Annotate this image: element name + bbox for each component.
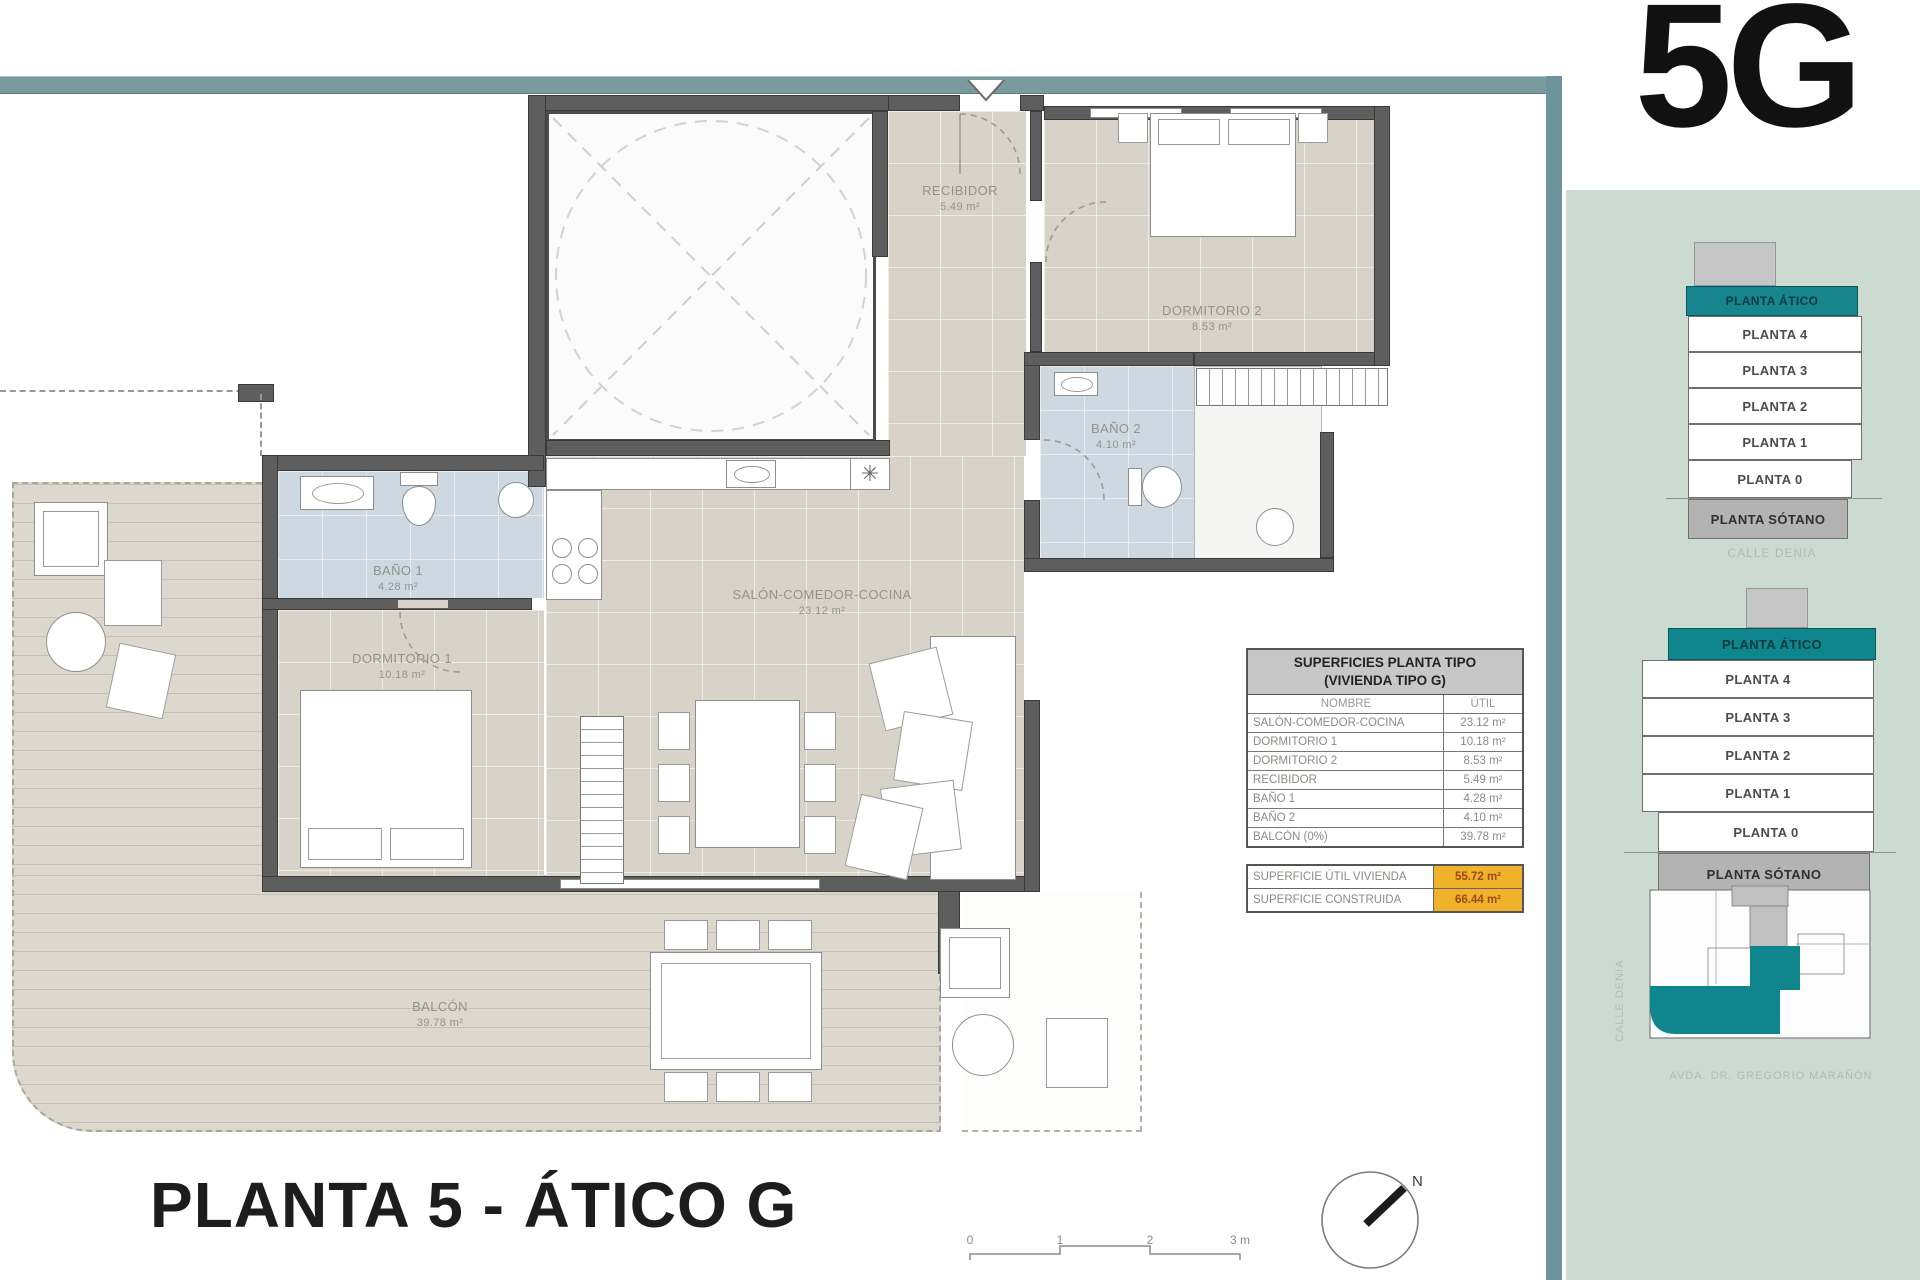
- room-label-bano1: BAÑO 14.28 m²: [268, 562, 528, 596]
- wall: [528, 95, 546, 487]
- boundary-dash: [0, 390, 262, 392]
- pillow: [390, 828, 464, 860]
- room-label-dormitorio2: DORMITORIO 28.53 m²: [1082, 302, 1342, 336]
- wall: [1030, 262, 1042, 352]
- chair: [804, 764, 836, 802]
- chair: [804, 712, 836, 750]
- table-row: SUPERFICIE ÚTIL VIVIENDA55.72 m²: [1248, 866, 1522, 888]
- wall: [238, 384, 274, 402]
- toilet-tank: [1128, 468, 1142, 506]
- pillow: [1228, 119, 1290, 145]
- wall: [1194, 352, 1390, 366]
- surfaces-totals: SUPERFICIE ÚTIL VIVIENDA55.72 m² SUPERFI…: [1246, 864, 1524, 913]
- bathroom-sink: [1054, 372, 1098, 396]
- street-label-left: CALLE DENIA: [1614, 922, 1626, 1042]
- room-label-recibidor: RECIBIDOR5.49 m²: [830, 182, 1090, 216]
- north-arrow-icon: N: [1308, 1152, 1438, 1276]
- outdoor-chair: [1046, 1018, 1108, 1088]
- stove-burner-icon: [552, 538, 572, 558]
- svg-text:1: 1: [1057, 1233, 1064, 1247]
- outdoor-dining-table: [650, 952, 822, 1070]
- street-label-bottom: AVDA. DR. GREGORIO MARAÑÓN: [1646, 1070, 1896, 1082]
- wall: [888, 95, 960, 111]
- top-border-bar: [0, 76, 1562, 94]
- laundry-sink-icon: [1256, 508, 1294, 546]
- wall: [546, 440, 890, 456]
- outdoor-table-round: [952, 1014, 1014, 1076]
- table-row: SUPERFICIE CONSTRUIDA66.44 m²: [1248, 888, 1522, 911]
- chair: [768, 920, 812, 950]
- stack-level-atico: PLANTA ÁTICO: [1686, 286, 1858, 316]
- stack-level: PLANTA 1: [1688, 424, 1862, 460]
- svg-text:0: 0: [967, 1233, 974, 1247]
- stack-level-sotano: PLANTA SÓTANO: [1688, 499, 1848, 539]
- chair: [768, 1072, 812, 1102]
- roof-box: [1746, 588, 1808, 628]
- wall: [1024, 352, 1194, 366]
- sofa-cushion: [893, 711, 973, 791]
- planter: [34, 502, 108, 576]
- wall: [1020, 95, 1044, 111]
- table-row: BAÑO 14.28 m²: [1248, 789, 1522, 808]
- outdoor-chair: [104, 560, 162, 626]
- right-border-strip: [1546, 76, 1562, 1280]
- site-plan: [1646, 884, 1896, 1066]
- room-label-salon: SALÓN-COMEDOR-COCINA23.12 m²: [692, 586, 952, 620]
- room-label-balcon: BALCÓN39.78 m²: [310, 998, 570, 1032]
- stack-level-atico: PLANTA ÁTICO: [1668, 628, 1876, 660]
- table-row: DORMITORIO 28.53 m²: [1248, 751, 1522, 770]
- table-row: BALCÓN (0%)39.78 m²: [1248, 827, 1522, 846]
- chair: [716, 920, 760, 950]
- stack-level: PLANTA 3: [1688, 352, 1862, 388]
- toilet: [1142, 466, 1182, 508]
- wall: [1374, 106, 1390, 366]
- room-label-bano2: BAÑO 24.10 m²: [986, 420, 1246, 454]
- chair: [658, 764, 690, 802]
- wall: [1024, 700, 1040, 892]
- stack-diagram-small: PLANTA ÁTICO PLANTA 4 PLANTA 3 PLANTA 2 …: [1686, 242, 1862, 562]
- planter: [940, 928, 1010, 998]
- stack-level: PLANTA 0: [1688, 460, 1852, 498]
- svg-text:2: 2: [1147, 1233, 1154, 1247]
- chair: [804, 816, 836, 854]
- stack-level: PLANTA 4: [1688, 316, 1862, 352]
- room-label-dormitorio1: DORMITORIO 110.18 m²: [272, 650, 532, 684]
- floor-plan-sheet: 5G: [0, 0, 1920, 1280]
- door-arc: [958, 112, 1024, 178]
- wall: [262, 455, 544, 471]
- stack-diagram-large: PLANTA ÁTICO PLANTA 4 PLANTA 3 PLANTA 2 …: [1642, 588, 1878, 928]
- wall: [528, 95, 890, 111]
- scale-bar: 0 1 2 3 m: [962, 1198, 1252, 1262]
- kitchen-sink: [726, 460, 776, 488]
- surfaces-header-row: NOMBRE ÚTIL: [1248, 695, 1522, 713]
- entry-arrow-icon: [966, 78, 1006, 104]
- stack-level: PLANTA 4: [1642, 660, 1874, 698]
- stove-burner-icon: [552, 564, 572, 584]
- stove-burner-icon: [578, 538, 598, 558]
- stack-level: PLANTA 1: [1642, 774, 1874, 812]
- surfaces-table-title: SUPERFICIES PLANTA TIPO (VIVIENDA TIPO G…: [1246, 648, 1524, 695]
- table-row: DORMITORIO 110.18 m²: [1248, 732, 1522, 751]
- street-caption: CALLE DENIA: [1686, 546, 1858, 560]
- shower-drain-icon: [498, 482, 534, 518]
- wardrobe-hatch: [1196, 368, 1388, 406]
- stove-burner-icon: [578, 564, 598, 584]
- roof-box: [1694, 242, 1776, 286]
- unit-label: 5G: [1586, 0, 1906, 159]
- table-row: RECIBIDOR5.49 m²: [1248, 770, 1522, 789]
- wall: [262, 598, 532, 610]
- patio-lightwell: [546, 111, 876, 442]
- chair: [664, 920, 708, 950]
- stack-level: PLANTA 2: [1688, 388, 1862, 424]
- page-title: PLANTA 5 - ÁTICO G: [150, 1168, 797, 1242]
- chair: [716, 1072, 760, 1102]
- patio-cross-icon: [549, 114, 873, 439]
- stack-level: PLANTA 3: [1642, 698, 1874, 736]
- fridge-snowflake-icon: ✳: [850, 458, 890, 490]
- toilet-tank: [400, 472, 438, 486]
- shelf-hatch: [580, 716, 624, 884]
- wall: [1024, 558, 1334, 572]
- chair: [664, 1072, 708, 1102]
- nightstand: [1298, 113, 1328, 143]
- surfaces-table: SUPERFICIES PLANTA TIPO (VIVIENDA TIPO G…: [1246, 648, 1524, 913]
- table-row: SALÓN-COMEDOR-COCINA23.12 m²: [1248, 713, 1522, 732]
- bathroom-sink: [300, 476, 374, 510]
- pillow: [308, 828, 382, 860]
- svg-text:N: N: [1412, 1173, 1423, 1190]
- outdoor-table-round: [46, 612, 106, 672]
- kitchen-counter: [546, 458, 890, 490]
- nightstand: [1118, 113, 1148, 143]
- svg-text:3 m: 3 m: [1230, 1233, 1250, 1247]
- wall: [1320, 432, 1334, 558]
- chair: [658, 816, 690, 854]
- pillow: [1158, 119, 1220, 145]
- chair: [658, 712, 690, 750]
- boundary-dash: [260, 394, 262, 456]
- stack-level: PLANTA 2: [1642, 736, 1874, 774]
- stack-level: PLANTA 0: [1658, 812, 1874, 852]
- door-gap: [398, 600, 448, 608]
- table-row: BAÑO 24.10 m²: [1248, 808, 1522, 827]
- dining-table: [695, 700, 800, 848]
